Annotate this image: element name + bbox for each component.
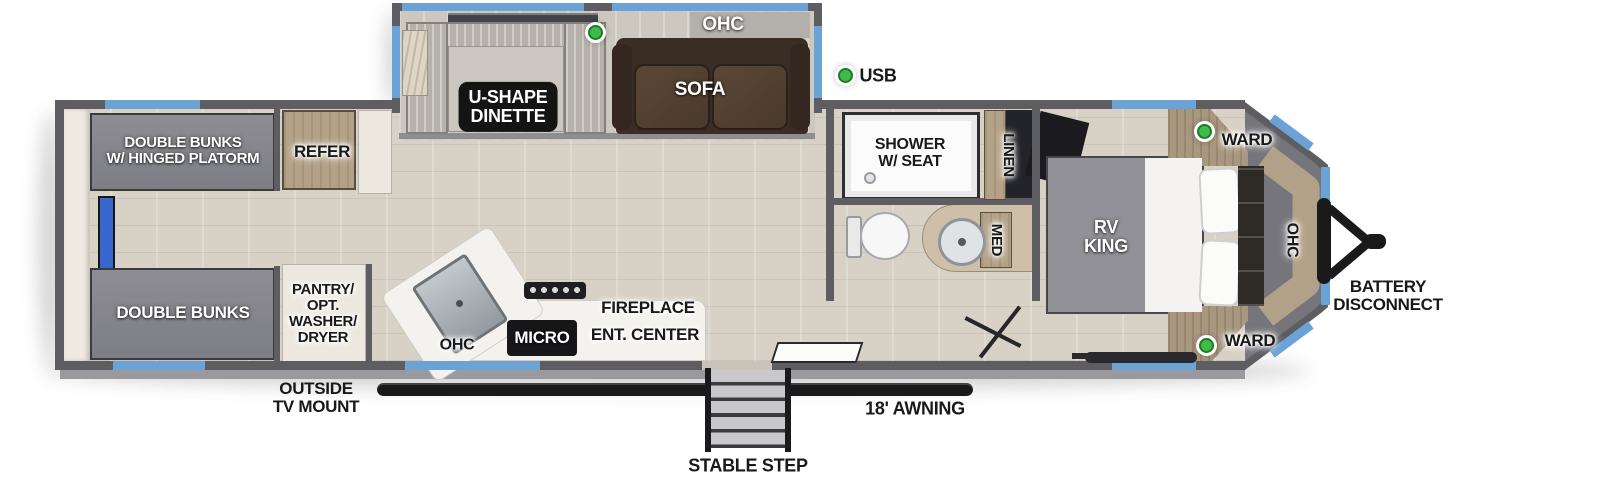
stove-burners — [524, 282, 586, 299]
underbody-band — [60, 370, 1245, 379]
dinette-curtain — [402, 30, 428, 96]
ward-top-label: WARD — [1222, 131, 1273, 149]
dinette-bench-right — [564, 22, 606, 134]
ward-bottom-label: WARD — [1225, 332, 1276, 350]
floorplan-canvas: U-SHAPE DINETTE SOFA OHC USB DOUBLE BUNK… — [0, 0, 1600, 485]
bed-runner — [1145, 158, 1202, 312]
hitch-aframe — [1329, 208, 1369, 276]
bunk-bottom-label: DOUBLE BUNKS — [116, 304, 249, 322]
bedroom-slide-handle — [1072, 353, 1087, 359]
wall-pantry-right — [366, 264, 372, 362]
bath-sink-drain — [958, 238, 966, 246]
refer-label: REFER — [294, 143, 350, 161]
window-rear-top — [105, 100, 200, 109]
step-treads — [711, 370, 785, 448]
shower-label: SHOWER W/ SEAT — [875, 137, 945, 171]
sofa-label: SOFA — [675, 80, 726, 100]
fireplace-label: FIREPLACE — [601, 299, 695, 317]
bunk-top-label: DOUBLE BUNKS W/ HINGED PLATORM — [107, 135, 260, 167]
hitch-coupler — [1364, 234, 1386, 249]
headboard — [1238, 166, 1264, 306]
awning-label: 18' AWNING — [865, 399, 965, 418]
window-kitchen-bottom — [405, 361, 540, 370]
wall-bunkroom-bottom — [274, 266, 280, 362]
shower-drain — [864, 172, 876, 184]
usb-label: USB — [859, 66, 896, 85]
slideout-ohc-label: OHC — [702, 15, 743, 35]
stable-step-label: STABLE STEP — [688, 456, 807, 475]
sink-drain — [456, 300, 463, 307]
entry-door-panel — [771, 342, 864, 363]
sofa-armrest-right — [790, 44, 810, 130]
pantry-label: PANTRY/ OPT. WASHER/ DRYER — [289, 282, 357, 346]
slideout-window-top-left — [402, 3, 584, 11]
cabinet-beside-refer — [358, 110, 392, 194]
micro-label: MICRO — [514, 329, 569, 347]
awning-bar — [377, 383, 973, 396]
wall-bunkroom-top — [274, 109, 280, 191]
linen-label: LINEN — [1000, 133, 1016, 177]
window-rear-bottom — [113, 361, 205, 370]
ent-center-label: ENT. CENTER — [591, 326, 699, 344]
pillow-top — [1198, 167, 1241, 235]
wall-bath-left — [826, 109, 834, 301]
outside-tv-label: OUTSIDE TV MOUNT — [273, 380, 359, 416]
wall-bath-right — [1032, 109, 1040, 301]
window-bedroom-top — [1112, 100, 1196, 109]
rear-wall-panel — [64, 109, 90, 361]
dinette-usb-dot — [588, 25, 603, 40]
slideout-window-top-right — [612, 3, 808, 11]
step-rail-right — [785, 368, 791, 452]
bunk-ladder — [98, 196, 115, 270]
battery-disconnect-label: BATTERY DISCONNECT — [1333, 278, 1442, 314]
dinette-label: U-SHAPE DINETTE — [459, 82, 558, 132]
wall-bath-mid — [826, 198, 1040, 205]
bedroom-slide-track — [1085, 352, 1197, 363]
toilet-bowl — [860, 212, 910, 260]
slideout-window-left — [392, 26, 400, 98]
pillow-bottom — [1198, 239, 1241, 307]
med-label: MED — [988, 224, 1004, 256]
bedroom-ohc-label: OHC — [1283, 223, 1300, 258]
ward-top-dot — [1197, 124, 1212, 139]
usb-indicator-dot — [838, 68, 853, 83]
wall-rear — [55, 100, 64, 370]
sofa-armrest-left — [612, 44, 632, 130]
slideout-window-right — [814, 26, 822, 98]
kitchen-ohc-label: OHC — [440, 338, 475, 355]
stable-step — [705, 368, 791, 452]
ward-bottom-dot — [1199, 338, 1214, 353]
bed-label: RV KING — [1084, 218, 1128, 256]
